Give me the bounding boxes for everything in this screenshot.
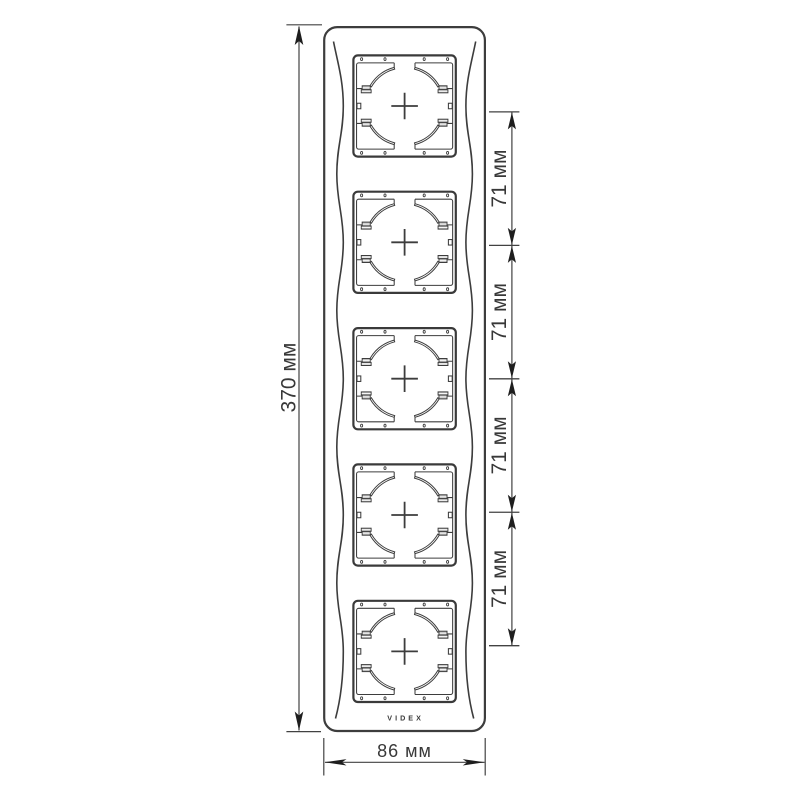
svg-text:71 мм: 71 мм	[488, 550, 511, 608]
svg-text:86 мм: 86 мм	[377, 741, 432, 761]
svg-text:71 мм: 71 мм	[488, 283, 511, 341]
svg-text:71 мм: 71 мм	[488, 416, 511, 474]
svg-text:VIDEX: VIDEX	[387, 714, 424, 723]
svg-text:71 мм: 71 мм	[488, 150, 511, 208]
svg-text:370 мм: 370 мм	[277, 343, 300, 413]
